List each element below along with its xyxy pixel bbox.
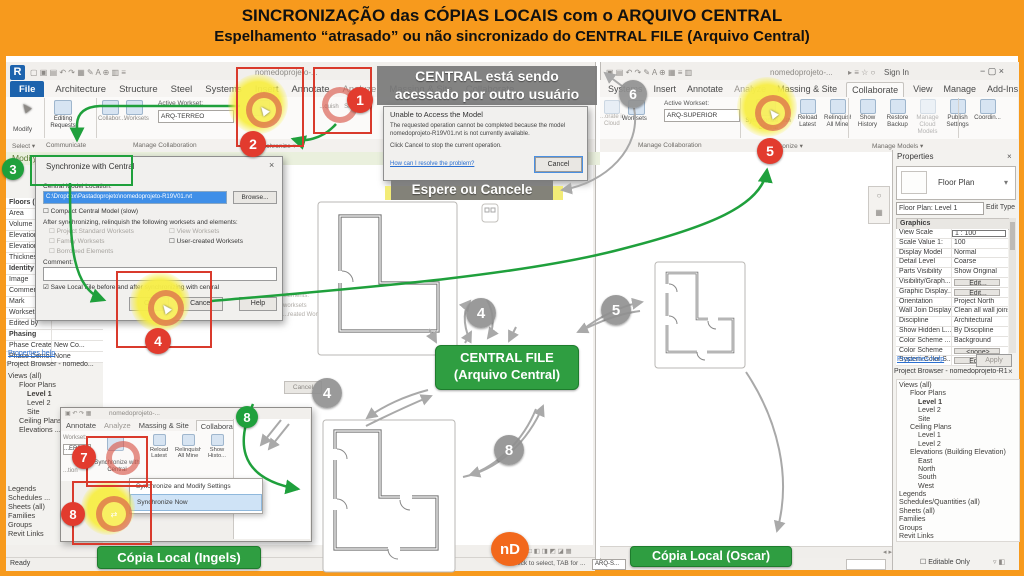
browser-tree-item[interactable]: Sheets (all) bbox=[899, 507, 1019, 515]
browser-tree-item[interactable]: Level 2 bbox=[899, 440, 1019, 448]
ribbon-tab[interactable]: Annotate bbox=[685, 82, 725, 96]
property-row[interactable]: OrientationProject North bbox=[896, 298, 1008, 308]
mini-fragment: ...tion bbox=[63, 468, 78, 474]
target-ring: ⇄ bbox=[96, 496, 132, 532]
browser-tree-item[interactable]: Legends bbox=[899, 490, 1019, 498]
door-tag[interactable]: 4 bbox=[705, 314, 719, 323]
project-browser-tree: Views (all)Floor PlansLevel 1Level 2Site… bbox=[896, 379, 1020, 542]
slide-subtitle: Espelhamento “atrasado” ou não sincroniz… bbox=[0, 28, 1024, 45]
dialog-body-2: nomedoprojeto-R19V01.rvt is not currentl… bbox=[390, 131, 530, 137]
browser-tree-item[interactable]: South bbox=[899, 473, 1019, 481]
property-row[interactable]: Parts VisibilityShow Original bbox=[896, 268, 1008, 278]
property-row[interactable]: Scale Value 1:100 bbox=[896, 239, 1008, 249]
revit-logo-icon[interactable]: R bbox=[10, 65, 25, 80]
door-tag[interactable]: 2 bbox=[658, 318, 672, 327]
type-dropdown-icon[interactable]: ▾ bbox=[1004, 178, 1008, 187]
browser-tree-item[interactable]: Level 1 bbox=[899, 431, 1019, 439]
ribbon-button[interactable]: Manage Cloud Models bbox=[914, 99, 941, 135]
project-browser-title: Project Browser - nomedoprojeto-R19... bbox=[894, 368, 1008, 375]
quick-access-toolbar-icons[interactable]: ▢ ▣ ▤ ↶ ↷ ▦ ✎ A ⊕ ▥ ≡ bbox=[30, 68, 126, 77]
ribbon-tab[interactable]: Massing & Site bbox=[138, 420, 190, 431]
browser-tree-item[interactable]: Floor Plans bbox=[899, 389, 1019, 397]
view-control-icons[interactable]: □ ◧ ◨ ◩ ◪ ▦ bbox=[528, 547, 572, 555]
manage-collab-group-label: Manage Collaboration bbox=[638, 142, 702, 149]
ribbon-separator bbox=[848, 98, 849, 138]
step-badge-6: 6 bbox=[619, 80, 647, 108]
flow-badge-4: 4 bbox=[312, 378, 342, 408]
comment-label: Comment: bbox=[43, 259, 73, 266]
workset-checkbox[interactable]: Project Standard Worksets bbox=[49, 227, 161, 237]
properties-close-icon[interactable]: × bbox=[1007, 152, 1012, 161]
left-project-browser-title: Project Browser - nomedo... bbox=[7, 361, 103, 368]
ribbon-button[interactable]: Reload Latest bbox=[146, 434, 172, 460]
flow-badge-4: 4 bbox=[466, 298, 496, 328]
ribbon-tab[interactable]: Collaborate bbox=[846, 82, 904, 97]
active-workset-dropdown[interactable]: ARQ-SUPERIOR bbox=[664, 109, 740, 122]
resolve-problem-link[interactable]: How can I resolve the problem? bbox=[390, 161, 474, 167]
central-file-line-2: (Arquivo Central) bbox=[436, 366, 578, 383]
help-button[interactable]: Help bbox=[239, 297, 277, 311]
property-row[interactable]: Color Scheme ...Background bbox=[896, 337, 1008, 347]
type-name: Floor Plan bbox=[938, 178, 974, 187]
ribbon-button[interactable]: Relinquish All Mine bbox=[175, 434, 201, 460]
cursor-icon bbox=[258, 104, 270, 116]
property-row[interactable]: Detail LevelCoarse bbox=[896, 258, 1008, 268]
banner-line-2: acessado por outro usuário bbox=[377, 85, 597, 103]
properties-panel-title: Properties bbox=[897, 152, 933, 161]
target-ring bbox=[106, 441, 140, 475]
left-properties-help-link[interactable]: Properties help bbox=[8, 350, 55, 357]
mini-window-title: nomedoprojeto-... bbox=[109, 410, 160, 417]
browser-tree-item[interactable]: Families bbox=[899, 515, 1019, 523]
door-tag[interactable]: 4 bbox=[396, 491, 413, 502]
worksets-button[interactable]: Worksets bbox=[622, 116, 647, 122]
select-group-label[interactable]: Select ▾ bbox=[12, 142, 35, 150]
cursor-icon bbox=[767, 107, 779, 119]
door-tag[interactable]: 5 bbox=[695, 348, 709, 357]
apply-button[interactable]: Apply bbox=[976, 354, 1012, 367]
worksets-button-label[interactable]: Worksets bbox=[124, 116, 149, 122]
target-ring bbox=[755, 95, 791, 131]
ribbon-tab[interactable]: Steel bbox=[169, 82, 195, 97]
sign-in-button[interactable]: Sign In bbox=[884, 68, 909, 77]
ribbon-button[interactable]: Show History bbox=[854, 99, 881, 135]
project-browser-close-icon[interactable]: × bbox=[1008, 367, 1013, 376]
central-file-line-1: CENTRAL FILE bbox=[436, 349, 578, 366]
wait-or-cancel-label: Espere ou Cancele bbox=[391, 180, 553, 200]
door-tag[interactable]: 2 bbox=[327, 276, 344, 287]
browser-tree-item[interactable]: Views (all) bbox=[8, 371, 103, 380]
slide-title: SINCRONIZAÇÃO das CÓPIAS LOCAIS com o AR… bbox=[0, 6, 1024, 26]
ready-status: Ready bbox=[10, 560, 30, 567]
right-window-title: nomedoprojeto-... bbox=[770, 68, 833, 77]
browser-tree-item[interactable]: Schedules/Quantities (all) bbox=[899, 498, 1019, 506]
right-ribbon-tabs: SystemsInsertAnnotateAnalyzeMassing & Si… bbox=[606, 81, 1020, 97]
right-status-dropdown[interactable] bbox=[846, 559, 886, 570]
editing-requests-icon[interactable] bbox=[54, 100, 72, 115]
step-badge-2: 2 bbox=[240, 131, 266, 157]
dialog-body-1: The requested operation cannot be comple… bbox=[390, 123, 565, 129]
workset-checkbox-group-left: Project Standard WorksetsFamily Worksets… bbox=[49, 227, 161, 257]
window-control-buttons[interactable]: − ▢ × bbox=[980, 66, 1004, 77]
target-ring bbox=[148, 290, 184, 326]
active-workset-label: Active Workset: bbox=[664, 100, 709, 107]
right-drawing-canvas[interactable] bbox=[600, 152, 892, 546]
highlight-box-dialog-title bbox=[30, 155, 133, 186]
collaborate-cloud-icon[interactable] bbox=[604, 100, 620, 114]
step-badge-7: 7 bbox=[72, 445, 96, 469]
workset-checkbox[interactable]: Family Worksets bbox=[49, 237, 161, 247]
unable-to-access-dialog: Unable to Access the Model The requested… bbox=[383, 106, 588, 181]
mini-ribbon-tabs: AnnotateAnalyzeMassing & SiteCollaborate bbox=[65, 420, 244, 431]
ribbon-tab[interactable]: File bbox=[10, 81, 44, 98]
banner-line-1: CENTRAL está sendo bbox=[377, 67, 597, 85]
properties-help-link[interactable]: Properties help bbox=[897, 356, 944, 363]
browser-tree-item[interactable]: Views (all) bbox=[899, 381, 1019, 389]
flow-badge-8: 8 bbox=[494, 435, 524, 465]
ribbon-button[interactable]: Show Histo... bbox=[204, 434, 230, 460]
central-file-label: CENTRAL FILE (Arquivo Central) bbox=[435, 345, 579, 390]
step-badge-8-green: 8 bbox=[236, 406, 258, 428]
step-badge-1: 1 bbox=[347, 87, 373, 113]
cloud-label-2: Cloud bbox=[604, 121, 620, 127]
browser-tree-item[interactable]: Level 2 bbox=[899, 406, 1019, 414]
worksets-icon[interactable] bbox=[126, 100, 143, 115]
navigation-bar[interactable]: ○▦ bbox=[868, 186, 890, 224]
property-row[interactable]: Display ModelNormal bbox=[896, 249, 1008, 259]
browser-tree-item[interactable]: Site bbox=[899, 415, 1019, 423]
browser-tree-item[interactable]: Revit Links bbox=[899, 532, 1019, 540]
door-tag[interactable]: 5 bbox=[384, 544, 401, 555]
browser-tree-item[interactable]: Level 1 bbox=[8, 389, 103, 398]
target-ring bbox=[246, 92, 282, 128]
properties-table: View Scale1 : 100Scale Value 1:100Displa… bbox=[896, 229, 1008, 366]
central-location-field[interactable]: C:\Dropbox\Pastadoprojeto\nomedoprojeto-… bbox=[43, 191, 227, 204]
ghost-text: worksets bbox=[283, 303, 307, 309]
mini-ribbon-buttons: Reload LatestRelinquish All MineShow His… bbox=[146, 434, 230, 460]
ribbon-tab[interactable]: Structure bbox=[117, 82, 160, 97]
central-in-use-banner: CENTRAL está sendo acessado por outro us… bbox=[377, 66, 597, 105]
dialog-title: Unable to Access the Model bbox=[390, 110, 483, 119]
manage-models-group-label[interactable]: Manage Models ▾ bbox=[872, 142, 923, 150]
ribbon-button[interactable]: Restore Backup bbox=[884, 99, 911, 135]
browser-tree-item[interactable]: Level 1 bbox=[899, 398, 1019, 406]
view-selector-dropdown[interactable]: Floor Plan: Level 1 bbox=[896, 202, 984, 215]
manage-collab-group-label: Manage Collaboration bbox=[133, 142, 197, 149]
ghost-text: elements: bbox=[283, 293, 309, 299]
ribbon-tab[interactable]: Architecture bbox=[53, 82, 108, 97]
browser-tree-item[interactable]: Floor Plans bbox=[8, 380, 103, 389]
status-hint: Click to select, TAB for ... bbox=[513, 560, 585, 567]
active-workset-dropdown[interactable]: ARQ-TERREO bbox=[158, 110, 234, 123]
browser-tree-item[interactable]: Ceiling Plans bbox=[899, 423, 1019, 431]
ribbon-button[interactable]: Relinquish All Mine bbox=[824, 99, 851, 135]
step-badge-4: 4 bbox=[145, 328, 171, 354]
property-row[interactable]: Wall Join DisplayClean all wall joins bbox=[896, 307, 1008, 317]
browser-tree-item[interactable]: West bbox=[899, 482, 1019, 490]
collaborate-icon[interactable] bbox=[102, 100, 119, 115]
property-row[interactable]: Show Hidden L...By Discipline bbox=[896, 327, 1008, 337]
ribbon-tab[interactable]: Manage bbox=[942, 82, 979, 96]
browser-filter-icons[interactable]: ▿ ◧ bbox=[993, 558, 1005, 566]
property-row[interactable]: Phasing bbox=[6, 330, 103, 341]
central-location-value: C:\Dropbox\Pastadoprojeto\nomedoprojeto-… bbox=[44, 192, 226, 203]
browser-tree-item[interactable]: Level 2 bbox=[8, 398, 103, 407]
workset-checkbox[interactable]: Borrowed Elements bbox=[49, 247, 161, 257]
mini-workset-label: Workset: bbox=[63, 435, 87, 441]
communicate-group-label: Communicate bbox=[46, 142, 86, 149]
title-bar-icons[interactable]: ▸ ≡ ☆ ○ bbox=[848, 68, 875, 77]
property-row[interactable]: Visibility/Graph...Edit... bbox=[896, 278, 1008, 288]
browser-tree-item[interactable]: Elevations (Building Elevation) bbox=[899, 448, 1019, 456]
flow-badge-5: 5 bbox=[601, 295, 631, 325]
step-badge-8: 8 bbox=[61, 502, 85, 526]
cursor-icon bbox=[160, 302, 172, 314]
local-copy-ingels-label: Cópia Local (Ingels) bbox=[97, 546, 261, 569]
browser-tree-item[interactable]: Groups bbox=[899, 524, 1019, 532]
property-row[interactable]: DisciplineArchitectural bbox=[896, 317, 1008, 327]
ribbon-separator bbox=[44, 98, 45, 138]
edit-type-button[interactable]: Edit Type bbox=[986, 204, 1015, 211]
nd-logo: nD bbox=[491, 532, 529, 566]
browser-tree-item[interactable]: East bbox=[899, 457, 1019, 465]
local-copy-oscar-label: Cópia Local (Oscar) bbox=[630, 546, 792, 567]
ribbon-tab[interactable]: Insert bbox=[652, 82, 679, 96]
right-ribbon-buttons: Reload LatestRelinquish All MineShow His… bbox=[794, 99, 1001, 135]
ribbon-tab[interactable]: View bbox=[911, 82, 934, 96]
editable-only-checkbox[interactable]: Editable Only bbox=[920, 558, 970, 566]
right-qat-icons[interactable]: ▣ ▤ ↶ ↷ ✎ A ⊕ ▦ ≡ ▥ bbox=[606, 68, 692, 77]
property-row[interactable]: Graphic Display...Edit... bbox=[896, 288, 1008, 298]
dialog-body-3: Click Cancel to stop the current operati… bbox=[390, 143, 502, 149]
compact-central-checkbox[interactable]: Compact Central Model (slow) bbox=[43, 207, 138, 215]
type-thumbnail-icon bbox=[901, 171, 927, 194]
browser-tree-item[interactable]: North bbox=[899, 465, 1019, 473]
ribbon-button[interactable]: Coordin... bbox=[974, 99, 1001, 135]
cancel-button[interactable]: Cancel bbox=[535, 157, 582, 172]
ghost-text: ...reated Work... bbox=[283, 312, 326, 318]
ribbon-button[interactable]: Reload Latest bbox=[794, 99, 821, 135]
after-sync-label: After synchronizing, relinquish the foll… bbox=[43, 219, 238, 226]
status-workset-box[interactable]: ARQ-S... bbox=[592, 559, 626, 570]
slide: SINCRONIZAÇÃO das CÓPIAS LOCAIS com o AR… bbox=[0, 0, 1024, 576]
mini-qat-icons[interactable]: ▣ ↶ ↷ ▦ bbox=[65, 410, 91, 417]
ribbon-separator bbox=[958, 98, 959, 138]
property-row[interactable]: View Scale1 : 100 bbox=[896, 229, 1008, 239]
editing-requests-button[interactable]: Editing Requests bbox=[46, 116, 80, 129]
door-tag[interactable]: 3 bbox=[326, 450, 343, 461]
browse-button[interactable]: Browse... bbox=[233, 191, 277, 204]
ribbon-tab[interactable]: Analyze bbox=[103, 420, 132, 431]
workset-checkbox[interactable]: View Worksets bbox=[169, 227, 279, 237]
ribbon-separator bbox=[96, 98, 97, 138]
workset-checkbox[interactable]: User-created Worksets bbox=[169, 237, 279, 247]
active-workset-label: Active Workset: bbox=[158, 100, 203, 107]
door-tag[interactable]: 2 bbox=[326, 500, 343, 511]
step-badge-3: 3 bbox=[2, 158, 24, 180]
modify-button[interactable]: Modify bbox=[13, 126, 32, 133]
scrollbar-thumb[interactable] bbox=[1010, 222, 1015, 250]
step-badge-5: 5 bbox=[757, 138, 783, 164]
workset-checkbox-group-right: View WorksetsUser-created Worksets bbox=[169, 227, 279, 247]
door-tag[interactable]: 3 bbox=[658, 286, 672, 295]
ribbon-tab[interactable]: Annotate bbox=[65, 420, 97, 431]
dialog-close-icon[interactable]: × bbox=[269, 160, 274, 170]
collaborate-button-label[interactable]: Collabor... bbox=[98, 116, 125, 122]
ribbon-tab[interactable]: Add-Ins bbox=[985, 82, 1020, 96]
